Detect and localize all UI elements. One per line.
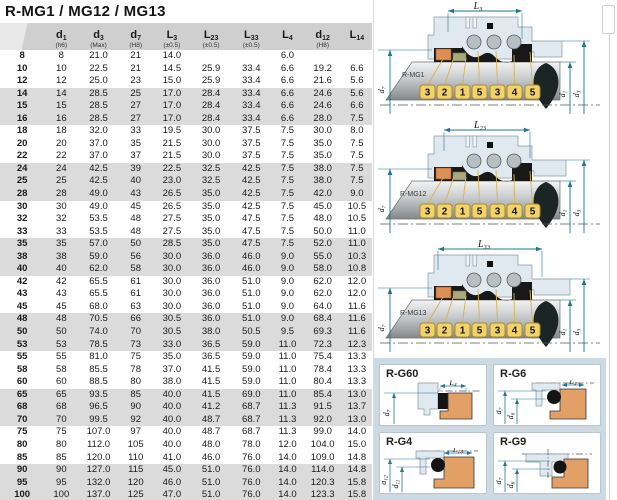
- cell-d3: 85.5: [78, 364, 118, 377]
- cell-l14: 14.0: [342, 426, 372, 439]
- spring-coil: [487, 154, 501, 168]
- dimensions-table: d1(h6) d3(Max) d7(H8) L3(±0.5) L23(±0.5)…: [0, 23, 372, 500]
- cell-d7: 97: [119, 426, 153, 439]
- dimension-label-l23: L23: [473, 121, 487, 132]
- cell-l14: 8.0: [342, 125, 372, 138]
- cell-l4: 9.5: [271, 326, 303, 339]
- cell-l23: 28.4: [191, 88, 231, 101]
- col-header-l23: L23(±0.5): [191, 23, 231, 50]
- dimension-d3: [570, 279, 590, 352]
- cell-d3: 78.5: [78, 339, 118, 352]
- cell-l3: 40.0: [153, 439, 191, 452]
- cell-l23: 41.5: [191, 364, 231, 377]
- dimension-label-d11: d11: [391, 479, 402, 488]
- cell-l3: 41.0: [153, 452, 191, 465]
- cell-d7: 110: [119, 452, 153, 465]
- o-ring: [431, 458, 445, 472]
- cell-l3: 22.5: [153, 163, 191, 176]
- table-row: 80 80 112.0 105 40.0 48.0 78.0 12.0 104.…: [0, 439, 372, 452]
- table-body: 8 8 21.0 21 14.0 6.0 10 10: [0, 50, 372, 500]
- cell-d7: 90: [119, 401, 153, 414]
- cell-size: 33: [0, 226, 44, 239]
- table-row: 16 16 28.5 27 17.0 28.4 33.4 6.6 28.0 7.…: [0, 113, 372, 126]
- cell-l4: 7.5: [271, 163, 303, 176]
- drive-pin: [487, 142, 493, 148]
- callout-number: 5: [477, 207, 483, 218]
- cell-l14: 15.8: [342, 489, 372, 500]
- cell-l4: 7.5: [271, 138, 303, 151]
- cell-size: 68: [0, 401, 44, 414]
- table-row: 32 32 53.5 48 27.5 35.0 47.5 7.5 48.0 10…: [0, 213, 372, 226]
- cell-l3: 40.0: [153, 401, 191, 414]
- cell-d12: 78.4: [304, 364, 342, 377]
- cell-d12: 85.4: [304, 389, 342, 402]
- seat-card-title: R-G6: [500, 368, 526, 380]
- cell-size: 95: [0, 477, 44, 490]
- col-header-l3: L3(±0.5): [153, 23, 191, 50]
- cell-d12: 92.0: [304, 414, 342, 427]
- table-row: 35 35 57.0 50 28.5 35.0 47.5 7.5 52.0 11…: [0, 238, 372, 251]
- cell-d3: 49.0: [78, 188, 118, 201]
- table-row: 25 25 42.5 40 23.0 32.5 42.5 7.5 38.0 7.…: [0, 175, 372, 188]
- cell-d3: 25.0: [78, 75, 118, 88]
- cell-l4: 7.5: [271, 125, 303, 138]
- set-screw-slot: [466, 17, 470, 28]
- cell-d7: 85: [119, 389, 153, 402]
- dimension-label-d3: d3: [572, 90, 583, 97]
- cell-d1: 90: [44, 464, 78, 477]
- cell-l33: 46.0: [231, 263, 271, 276]
- cell-l23: 51.0: [191, 489, 231, 500]
- dimension-d1: [560, 300, 576, 352]
- cell-l33: 46.0: [231, 251, 271, 264]
- cell-d3: 53.5: [78, 226, 118, 239]
- cell-l3: 30.0: [153, 251, 191, 264]
- callout-number: 3: [495, 207, 501, 218]
- cell-d3: 99.5: [78, 414, 118, 427]
- cell-l23: 28.4: [191, 113, 231, 126]
- cell-l4: 12.0: [271, 439, 303, 452]
- cell-d12: 21.6: [304, 75, 342, 88]
- seal-ring: [438, 393, 448, 409]
- table-row: 30 30 49.0 45 26.5 35.0 42.5 7.5 45.0 10…: [0, 201, 372, 214]
- cell-size: 90: [0, 464, 44, 477]
- table-row: 22 22 37.0 37 21.5 30.0 37.5 7.5 35.0 7.…: [0, 150, 372, 163]
- seat-card-r-g6: R-G6 L4: [493, 364, 601, 426]
- cell-d1: 80: [44, 439, 78, 452]
- cell-l4: 9.0: [271, 301, 303, 314]
- cell-l14: 10.3: [342, 251, 372, 264]
- cell-size: 8: [0, 50, 44, 63]
- callout-number: 2: [442, 326, 448, 337]
- cell-l4: 14.0: [271, 489, 303, 500]
- page-title: R-MG1 / MG12 / MG13: [5, 3, 373, 20]
- cell-l33: 51.0: [231, 288, 271, 301]
- set-screw-slot: [473, 17, 477, 28]
- cell-l4: 6.0: [271, 50, 303, 63]
- cell-d12: 30.0: [304, 125, 342, 138]
- cell-l3: 26.5: [153, 201, 191, 214]
- cell-d1: 14: [44, 88, 78, 101]
- seal-face-mating: [453, 53, 466, 61]
- cell-l4: 11.3: [271, 426, 303, 439]
- cell-d3: 70.5: [78, 313, 118, 326]
- cell-l23: 48.7: [191, 414, 231, 427]
- cell-l33: 33.4: [231, 75, 271, 88]
- cell-l4: 7.5: [271, 238, 303, 251]
- col-header-d7: d7(H8): [119, 23, 153, 50]
- spring-coil: [507, 35, 521, 49]
- seat-drawing: L4 d7 d6: [496, 380, 600, 426]
- col-header-l33: L33(±0.5): [231, 23, 271, 50]
- cell-d1: 43: [44, 288, 78, 301]
- cell-d3: 93.5: [78, 389, 118, 402]
- cell-l33: 33.4: [231, 88, 271, 101]
- cell-l3: 28.5: [153, 238, 191, 251]
- callout-number: 2: [442, 88, 448, 99]
- cell-l33: 76.0: [231, 477, 271, 490]
- cell-l14: 7.5: [342, 175, 372, 188]
- cell-d1: 28: [44, 188, 78, 201]
- cell-l14: 7.5: [342, 163, 372, 176]
- dimension-d3: [562, 41, 590, 114]
- cell-l3: 30.0: [153, 301, 191, 314]
- callout-number: 5: [477, 88, 483, 99]
- spring-coil: [487, 273, 501, 287]
- cell-d1: 65: [44, 389, 78, 402]
- seat-card-title: R-G60: [386, 368, 418, 380]
- cell-l4: 14.0: [271, 452, 303, 465]
- cell-l14: 12.0: [342, 288, 372, 301]
- cell-size: 24: [0, 163, 44, 176]
- cell-d1: 10: [44, 63, 78, 76]
- cell-l3: 45.0: [153, 464, 191, 477]
- dimension-d1: [560, 62, 576, 114]
- cell-l33: 68.7: [231, 426, 271, 439]
- cell-l14: 13.0: [342, 389, 372, 402]
- cell-d7: 61: [119, 276, 153, 289]
- cell-d1: 53: [44, 339, 78, 352]
- cell-l14: 9.0: [342, 188, 372, 201]
- cell-d3: 28.5: [78, 88, 118, 101]
- cell-l3: 15.0: [153, 75, 191, 88]
- cell-d12: 35.0: [304, 150, 342, 163]
- dimension-label-d12: d12: [382, 475, 390, 485]
- seal-cross-section-drawing: 3 2 1 5 3 4 5 R-MG12 L23: [374, 121, 606, 239]
- cell-d7: 25: [119, 88, 153, 101]
- cell-l4: 7.5: [271, 150, 303, 163]
- dimension-label-d3: d3: [572, 328, 583, 335]
- table-header: d1(h6) d3(Max) d7(H8) L3(±0.5) L23(±0.5)…: [0, 23, 372, 50]
- cell-size: 75: [0, 426, 44, 439]
- diagram-label: R-MG12: [400, 191, 427, 198]
- cell-d3: 120.0: [78, 452, 118, 465]
- cell-l23: 36.0: [191, 276, 231, 289]
- cell-size: 32: [0, 213, 44, 226]
- table-row: 18 18 32.0 33 19.5 30.0 37.5 7.5 30.0 8.…: [0, 125, 372, 138]
- cell-l14: [342, 50, 372, 63]
- cell-l23: 25.9: [191, 63, 231, 76]
- cell-size: 48: [0, 313, 44, 326]
- cell-l3: 30.5: [153, 313, 191, 326]
- cell-l14: 6.6: [342, 100, 372, 113]
- cell-l4: 9.0: [271, 276, 303, 289]
- cell-d7: 21: [119, 63, 153, 76]
- cell-d12: 104.0: [304, 439, 342, 452]
- cell-l23: 35.0: [191, 226, 231, 239]
- table-row: 38 38 59.0 56 30.0 36.0 46.0 9.0 55.0 10…: [0, 251, 372, 264]
- seal-diagram-r-mg13: 3 2 1 5 3 4 5 R-MG13 L33: [374, 240, 606, 358]
- cell-d1: 60: [44, 376, 78, 389]
- dimension-label-d7: d7: [377, 324, 388, 331]
- cell-l14: 10.5: [342, 213, 372, 226]
- cell-d7: 70: [119, 326, 153, 339]
- col-header-size: [0, 23, 44, 50]
- col-header-l14: L14: [342, 23, 372, 50]
- cell-l4: 9.0: [271, 251, 303, 264]
- cell-l14: 11.0: [342, 226, 372, 239]
- cell-d12: 24.6: [304, 88, 342, 101]
- cell-d3: 74.0: [78, 326, 118, 339]
- cell-d3: 62.0: [78, 263, 118, 276]
- cell-d12: 58.0: [304, 263, 342, 276]
- cell-d1: 58: [44, 364, 78, 377]
- cell-d3: 127.0: [78, 464, 118, 477]
- seat-card-title: R-G9: [500, 436, 526, 448]
- cell-l23: 36.0: [191, 288, 231, 301]
- part-callouts: 3 2 1 5 3 4 5: [420, 204, 540, 218]
- cell-l14: 13.0: [342, 414, 372, 427]
- cell-size: 40: [0, 263, 44, 276]
- cell-d12: 52.0: [304, 238, 342, 251]
- cell-l23: 30.0: [191, 125, 231, 138]
- cell-d3: 68.0: [78, 301, 118, 314]
- cell-d1: 42: [44, 276, 78, 289]
- cell-l33: 69.0: [231, 389, 271, 402]
- cell-l3: 26.5: [153, 188, 191, 201]
- spring-coil: [507, 154, 521, 168]
- cell-d7: 125: [119, 489, 153, 500]
- cell-d12: 75.4: [304, 351, 342, 364]
- cell-d7: 39: [119, 163, 153, 176]
- cell-l33: 51.0: [231, 313, 271, 326]
- cell-size: 30: [0, 201, 44, 214]
- diagram-label: R-MG13: [400, 310, 427, 317]
- cell-d7: 115: [119, 464, 153, 477]
- cell-l4: 9.0: [271, 313, 303, 326]
- cell-d12: 72.3: [304, 339, 342, 352]
- cell-l4: 9.0: [271, 288, 303, 301]
- seat-card-r-g60: R-G60 L4: [379, 364, 487, 426]
- cell-l4: 14.0: [271, 477, 303, 490]
- cell-size: 43: [0, 288, 44, 301]
- cell-d3: 96.5: [78, 401, 118, 414]
- col-header-d1: d1(h6): [44, 23, 78, 50]
- cell-d1: 20: [44, 138, 78, 151]
- table-row: 68 68 96.5 90 40.0 41.2 68.7 11.3 91.5 1…: [0, 401, 372, 414]
- cell-l14: 5.6: [342, 75, 372, 88]
- cell-d1: 22: [44, 150, 78, 163]
- cell-l23: 35.0: [191, 201, 231, 214]
- cell-l4: 6.6: [271, 113, 303, 126]
- cell-d3: 137.0: [78, 489, 118, 500]
- cell-d7: 40: [119, 175, 153, 188]
- cell-l14: 11.6: [342, 313, 372, 326]
- cell-l4: 6.6: [271, 75, 303, 88]
- table-row: 45 45 68.0 63 30.0 36.0 51.0 9.0 64.0 11…: [0, 301, 372, 314]
- cell-l33: 33.4: [231, 113, 271, 126]
- cell-d7: 73: [119, 339, 153, 352]
- cell-d7: 37: [119, 150, 153, 163]
- cell-l14: 12.3: [342, 339, 372, 352]
- cell-l14: 13.3: [342, 364, 372, 377]
- dimension-label-l14: L14: [452, 448, 463, 456]
- cell-d12: 62.0: [304, 276, 342, 289]
- cell-l33: 76.0: [231, 489, 271, 500]
- cell-l33: 51.0: [231, 301, 271, 314]
- cell-l14: 14.8: [342, 452, 372, 465]
- cell-l4: 11.3: [271, 414, 303, 427]
- cell-l3: 30.0: [153, 263, 191, 276]
- cell-l3: 19.5: [153, 125, 191, 138]
- cell-d1: 68: [44, 401, 78, 414]
- spring-coil: [467, 35, 481, 49]
- cell-l14: 13.3: [342, 376, 372, 389]
- table-row: 8 8 21.0 21 14.0 6.0: [0, 50, 372, 63]
- cell-d3: 21.0: [78, 50, 118, 63]
- cell-d7: 43: [119, 188, 153, 201]
- cell-d1: 45: [44, 301, 78, 314]
- seat-card-r-g9: R-G9 d7: [493, 432, 601, 494]
- cell-d12: 68.4: [304, 313, 342, 326]
- cell-l33: 68.7: [231, 414, 271, 427]
- table-row: 53 53 78.5 73 33.0 36.5 59.0 11.0 72.3 1…: [0, 339, 372, 352]
- cell-l3: 40.0: [153, 414, 191, 427]
- seal-cross-section-drawing: 3 2 1 5 3 4 5 R-MG1 L3: [374, 2, 606, 120]
- cell-d12: 35.0: [304, 138, 342, 151]
- set-screw-slot: [473, 255, 477, 266]
- cell-d12: 120.3: [304, 477, 342, 490]
- cell-d1: 33: [44, 226, 78, 239]
- dimension-label-d7: d7: [496, 477, 505, 484]
- cell-l23: 36.5: [191, 351, 231, 364]
- dimension-label-d6: d6: [506, 481, 517, 488]
- table-section: R-MG1 / MG12 / MG13 d1(h6) d3(Max) d7(H8…: [0, 0, 374, 500]
- cell-l3: 33.0: [153, 339, 191, 352]
- cell-d3: 49.0: [78, 201, 118, 214]
- callout-number: 3: [495, 326, 501, 337]
- cell-l23: 36.0: [191, 313, 231, 326]
- cell-size: 22: [0, 150, 44, 163]
- cell-size: 70: [0, 414, 44, 427]
- diagram-section: 3 2 1 5 3 4 5 R-MG1 L3: [374, 0, 606, 500]
- cell-d7: 80: [119, 376, 153, 389]
- seat-drawing: L4 d7: [382, 380, 486, 426]
- table-row: 85 85 120.0 110 41.0 46.0 76.0 14.0 109.…: [0, 452, 372, 465]
- cell-d3: 37.0: [78, 138, 118, 151]
- cell-l23: 32.5: [191, 175, 231, 188]
- cell-d12: 45.0: [304, 201, 342, 214]
- set-screw-slot: [473, 136, 477, 147]
- cell-l4: 11.3: [271, 401, 303, 414]
- cell-l33: 59.0: [231, 351, 271, 364]
- callout-number: 3: [425, 88, 431, 99]
- cell-l4: 7.5: [271, 213, 303, 226]
- cell-d1: 24: [44, 163, 78, 176]
- callout-number: 3: [495, 88, 501, 99]
- cell-d1: 16: [44, 113, 78, 126]
- cell-d3: 132.0: [78, 477, 118, 490]
- cell-d1: 75: [44, 426, 78, 439]
- cell-d1: 12: [44, 75, 78, 88]
- cell-d3: 65.5: [78, 288, 118, 301]
- cell-l33: 68.7: [231, 401, 271, 414]
- cell-d7: 66: [119, 313, 153, 326]
- cell-d3: 42.5: [78, 163, 118, 176]
- cell-l4: 7.5: [271, 226, 303, 239]
- cell-l23: 25.9: [191, 75, 231, 88]
- cell-l23: 51.0: [191, 477, 231, 490]
- cell-d12: 24.6: [304, 100, 342, 113]
- cell-l33: 59.0: [231, 364, 271, 377]
- cell-d3: 65.5: [78, 276, 118, 289]
- spring-coil: [467, 273, 481, 287]
- seal-cross-section-drawing: 3 2 1 5 3 4 5 R-MG13 L33: [374, 240, 606, 358]
- cell-l4: 11.0: [271, 389, 303, 402]
- cell-l14: 12.0: [342, 276, 372, 289]
- cell-size: 15: [0, 100, 44, 113]
- cell-d12: 19.2: [304, 63, 342, 76]
- cell-d12: 38.0: [304, 163, 342, 176]
- cell-l33: 47.5: [231, 238, 271, 251]
- dimension-label-d7: d7: [377, 205, 388, 212]
- cell-l33: 37.5: [231, 150, 271, 163]
- page-edge-notch: [602, 5, 615, 34]
- cell-d7: 61: [119, 288, 153, 301]
- table-row: 70 70 99.5 92 40.0 48.7 68.7 11.3 92.0 1…: [0, 414, 372, 427]
- table-row: 48 48 70.5 66 30.5 36.0 51.0 9.0 68.4 11…: [0, 313, 372, 326]
- cell-l33: 33.4: [231, 63, 271, 76]
- o-ring: [547, 390, 561, 404]
- table-row: 42 42 65.5 61 30.0 36.0 51.0 9.0 62.0 12…: [0, 276, 372, 289]
- callout-number: 1: [460, 88, 466, 99]
- table-row: 14 14 28.5 25 17.0 28.4 33.4 6.6 24.6 5.…: [0, 88, 372, 101]
- seal-face-mating: [453, 291, 466, 299]
- cell-l23: 36.0: [191, 301, 231, 314]
- spring-coil: [467, 154, 481, 168]
- cell-d1: 70: [44, 414, 78, 427]
- cell-l3: 30.0: [153, 276, 191, 289]
- part-callouts: 3 2 1 5 3 4 5: [420, 323, 540, 337]
- dimension-label-d7: d7: [377, 86, 388, 93]
- cell-d12: 42.0: [304, 188, 342, 201]
- cell-l4: 11.0: [271, 364, 303, 377]
- table-row: 50 50 74.0 70 30.5 38.0 50.5 9.5 69.3 11…: [0, 326, 372, 339]
- table-row: 58 58 85.5 78 37.0 41.5 59.0 11.0 78.4 1…: [0, 364, 372, 377]
- cell-d1: 25: [44, 175, 78, 188]
- cell-d7: 48: [119, 213, 153, 226]
- seal-diagram-r-mg12: 3 2 1 5 3 4 5 R-MG12 L23: [374, 121, 606, 239]
- cell-d1: 38: [44, 251, 78, 264]
- cell-d3: 57.0: [78, 238, 118, 251]
- cell-d1: 8: [44, 50, 78, 63]
- cell-l14: 6.6: [342, 63, 372, 76]
- col-header-d12: d12(H8): [304, 23, 342, 50]
- cell-l33: 59.0: [231, 339, 271, 352]
- cell-d1: 95: [44, 477, 78, 490]
- cell-l3: 30.5: [153, 326, 191, 339]
- cell-l3: 14.5: [153, 63, 191, 76]
